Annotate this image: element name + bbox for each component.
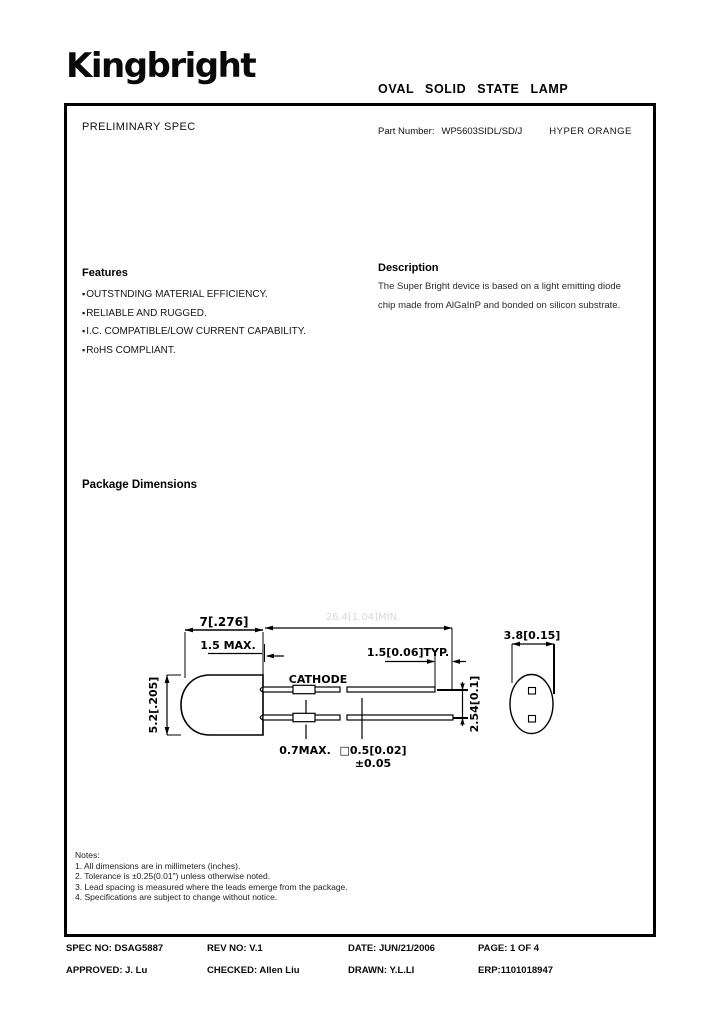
note-item: 1. All dimensions are in millimeters (in… (75, 861, 348, 872)
dim-oval-width-label: 3.8[0.15] (504, 629, 561, 642)
footer-spec-no: SPEC NO: DSAG5887 (66, 943, 163, 954)
bullet-icon: ▪ (82, 345, 85, 355)
feature-item-label: RELIABLE AND RUGGED. (86, 308, 207, 319)
feature-item-label: OUTSTNDING MATERIAL EFFICIENCY. (86, 289, 268, 300)
note-item: 3. Lead spacing is measured where the le… (75, 882, 348, 893)
lead-crimp (293, 685, 315, 693)
page-root: Kingbright OVAL SOLID STATE LAMP PRELIMI… (0, 0, 720, 1012)
features-heading: Features (82, 267, 128, 279)
feature-item: ▪I.C. COMPATIBLE/LOW CURRENT CAPABILITY. (82, 322, 306, 341)
bullet-icon: ▪ (82, 289, 85, 299)
part-number-row: Part Number:WP5603SIDL/SD/JHYPER ORANGE (378, 126, 632, 137)
dim-lead-tip-label: 1.5[0.06]TYP. (367, 646, 449, 659)
footer-approved: APPROVED: J. Lu (66, 965, 147, 976)
brand-logo: Kingbright (66, 46, 255, 86)
note-item: 2. Tolerance is ±0.25(0.01") unless othe… (75, 871, 348, 882)
dim-arrow (452, 659, 460, 664)
description-line: chip made from AlGaInP and bonded on sil… (378, 296, 621, 315)
part-number-value: WP5603SIDL/SD/J (442, 126, 523, 137)
footer-rev-no: REV NO: V.1 (207, 943, 263, 954)
cathode-label: CATHODE (289, 673, 347, 686)
dim-kink-label: 0.7MAX. (279, 744, 331, 757)
feature-item-label: I.C. COMPATIBLE/LOW CURRENT CAPABILITY. (86, 326, 306, 337)
notes-heading: Notes: (75, 850, 348, 861)
feature-item-label: RoHS COMPLIANT. (86, 345, 175, 356)
features-section: ▪OUTSTNDING MATERIAL EFFICIENCY. ▪RELIAB… (82, 285, 306, 359)
notes-section: Notes: 1. All dimensions are in millimet… (75, 850, 348, 903)
note-item: 4. Specifications are subject to change … (75, 892, 348, 903)
dim-lead-cross-label: □0.5[0.02] (339, 744, 406, 757)
dim-body-height-label: 5.2[.205] (147, 677, 160, 734)
lead-rect (347, 715, 453, 720)
package-dimensions-drawing: 7[.276] 26.4[1.04]MIN. 1.5 MAX. 5.2[.205… (140, 590, 600, 800)
dim-flange-label: 1.5 MAX. (200, 639, 255, 652)
footer-erp: ERP:1101018947 (478, 965, 553, 976)
feature-item: ▪RoHS COMPLIANT. (82, 341, 306, 360)
bullet-icon: ▪ (82, 308, 85, 318)
lead-rect (347, 687, 435, 692)
document-title: OVAL SOLID STATE LAMP (378, 82, 568, 96)
led-body-outline (181, 675, 263, 735)
bullet-icon: ▪ (82, 326, 85, 336)
dim-arrow (265, 626, 273, 631)
lead-crimp (293, 713, 315, 721)
preliminary-spec-label: PRELIMINARY SPEC (82, 121, 196, 133)
dim-arrow (427, 659, 435, 664)
footer-drawn: DRAWN: Y.L.LI (348, 965, 414, 976)
dim-arrow (255, 628, 263, 633)
dim-arrow (546, 642, 554, 647)
dim-lead-cross-tol-label: ±0.05 (355, 757, 391, 770)
footer-checked: CHECKED: Allen Liu (207, 965, 300, 976)
description-heading: Description (378, 262, 439, 274)
dim-arrow (512, 642, 520, 647)
faint-lead-length-label: 26.4[1.04]MIN. (326, 612, 401, 623)
dim-body-width-label: 7[.276] (200, 615, 249, 629)
lead-square (529, 688, 536, 695)
dim-arrow (165, 675, 170, 683)
dim-arrow (165, 727, 170, 735)
footer-page: PAGE: 1 OF 4 (478, 943, 539, 954)
dim-arrow (266, 654, 274, 659)
oval-side-view (510, 675, 553, 734)
footer-date: DATE: JUN/21/2006 (348, 943, 435, 954)
dim-lead-pitch-label: 2.54[0.1] (468, 676, 481, 733)
description-section: The Super Bright device is based on a li… (378, 277, 621, 315)
part-number-label: Part Number: (378, 126, 435, 137)
spec-border-box (64, 103, 656, 937)
lead-square (529, 716, 536, 723)
feature-item: ▪OUTSTNDING MATERIAL EFFICIENCY. (82, 285, 306, 304)
dim-arrow (185, 628, 193, 633)
emitted-color-label: HYPER ORANGE (549, 126, 632, 137)
description-line: The Super Bright device is based on a li… (378, 277, 621, 296)
feature-item: ▪RELIABLE AND RUGGED. (82, 304, 306, 323)
dim-arrow (444, 626, 452, 631)
package-dimensions-heading: Package Dimensions (82, 479, 197, 491)
